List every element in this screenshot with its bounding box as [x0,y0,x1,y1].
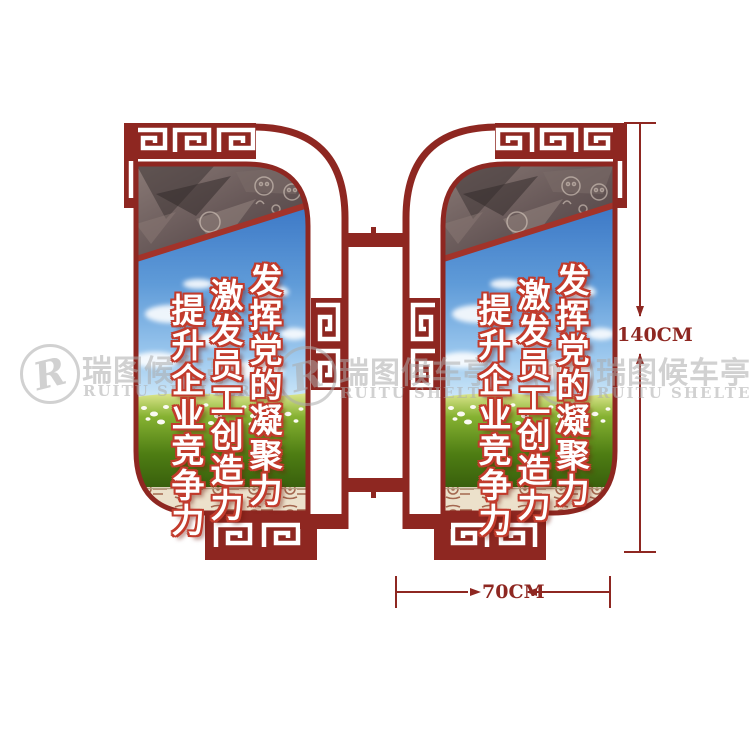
brand-logo-icon: R [277,346,337,406]
slogan-column-3-right-panel: 提升企业竞争力 [476,293,509,538]
arrow-down-icon [636,306,644,317]
arrow-right-icon [470,588,481,596]
watermark-brand-en: RUITU SHELTER [597,384,750,402]
brand-logo-icon: R [20,344,80,404]
lightbox-product-mockup: R 瑞图候车亭 RUITU SHELTER R 瑞图候车亭 RUITU SHEL… [0,0,750,750]
slogan-column-2-right-panel: 激发员工创造力 [515,278,548,523]
slogan-column-2-left-panel: 激发员工创造力 [208,278,241,523]
watermark-center: R 瑞图候车亭 RUITU SHELTER [277,346,477,408]
logo-letter: R [30,352,70,397]
slogan-column-3-left-panel: 提升企业竞争力 [169,293,202,538]
slogan-column-1-left-panel: 发挥党的凝聚力 [247,263,280,508]
height-dimension-label: 140CM [617,324,693,346]
logo-letter: R [287,354,327,399]
slogan-column-1-right-panel: 发挥党的凝聚力 [554,263,587,508]
width-dimension-label: 70CM [482,581,545,603]
